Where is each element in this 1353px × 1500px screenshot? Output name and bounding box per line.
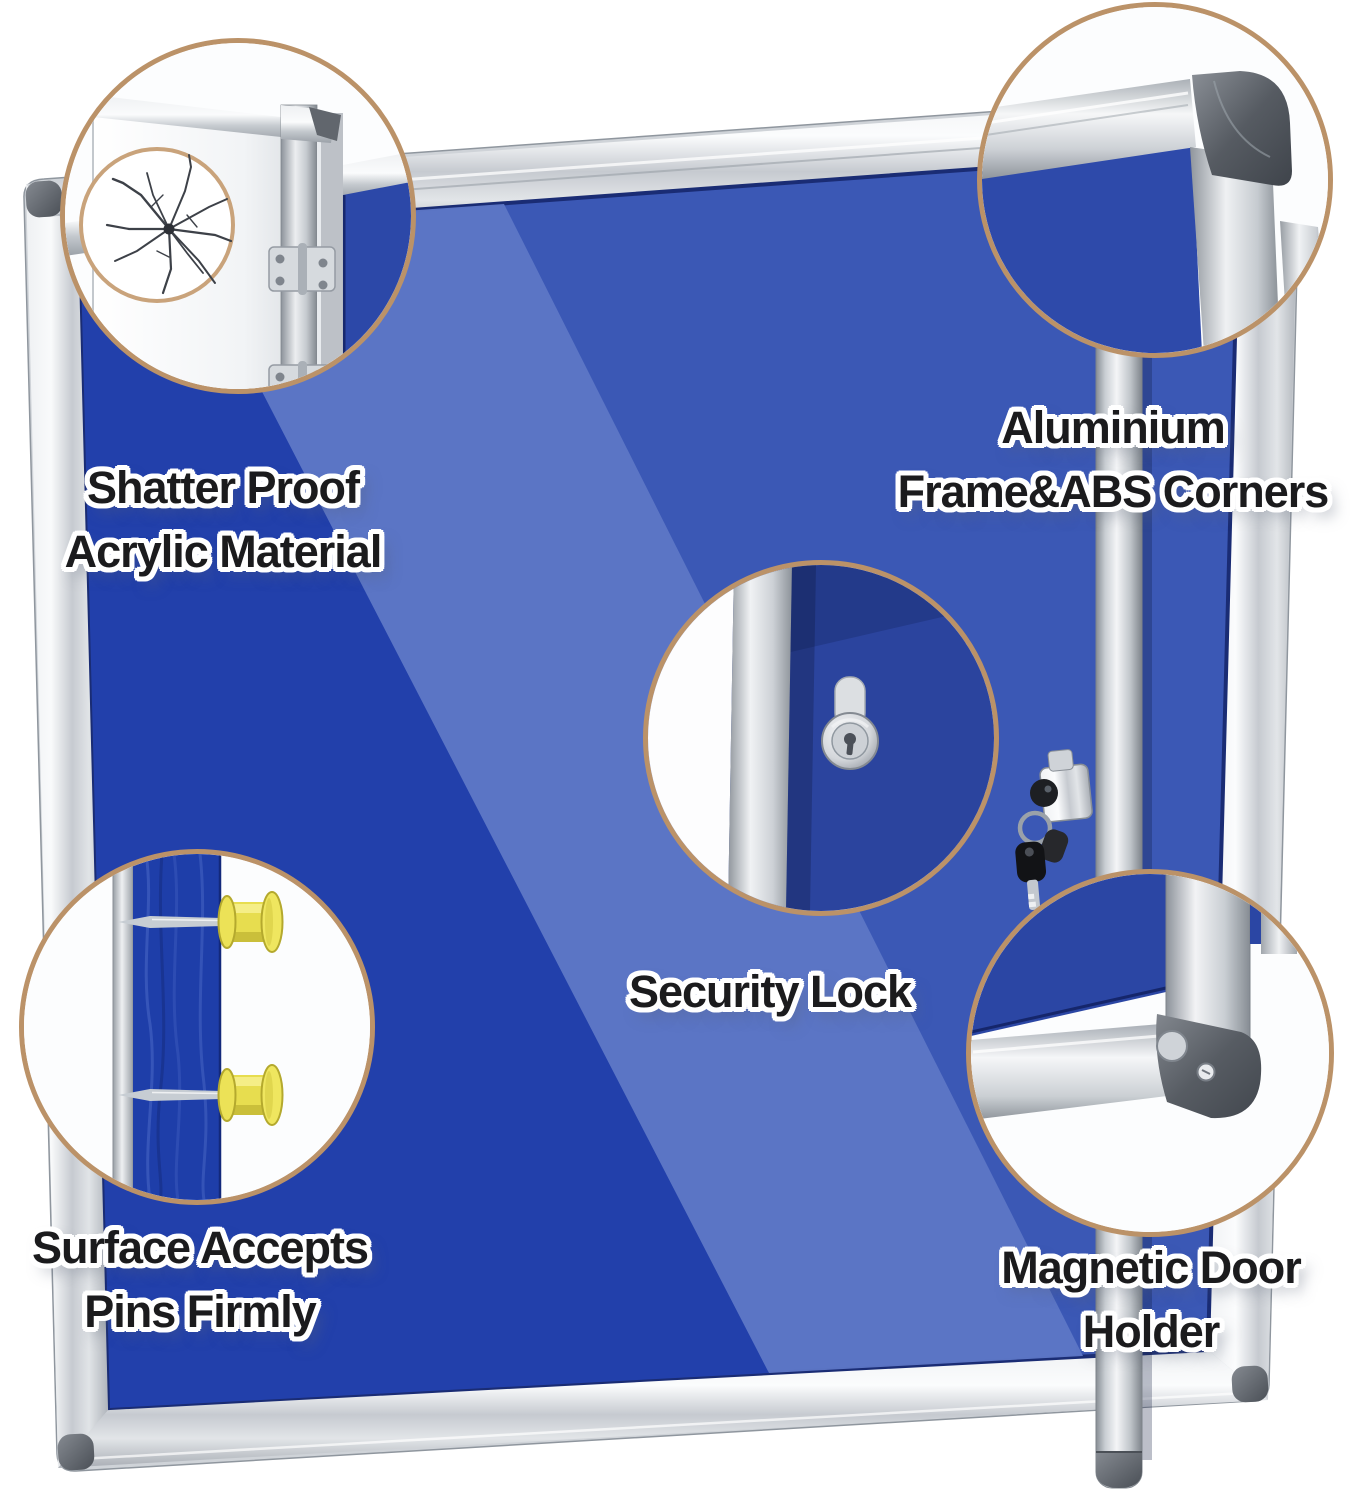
magnetic-corner-icon — [971, 874, 1329, 1232]
label-aluminium-corner: Aluminium Frame&ABS Corners — [874, 396, 1352, 524]
product-feature-infographic: Shatter Proof Acrylic Material Aluminium… — [0, 0, 1353, 1500]
pin-inner-flange — [219, 1069, 236, 1121]
door-corner-cap — [1096, 1452, 1142, 1488]
callout-aluminium-corner — [977, 2, 1333, 358]
callout-security-lock — [643, 560, 999, 916]
callout-shatter-proof — [60, 38, 416, 394]
door-frame-bar — [1166, 874, 1250, 1044]
corner-cap-bottom-right — [1231, 1365, 1269, 1403]
push-pins-icon — [24, 854, 370, 1200]
lock-cylinder-icon — [648, 565, 994, 911]
label-security-lock: Security Lock — [575, 960, 965, 1024]
label-magnetic-holder: Magnetic Door Holder — [952, 1236, 1350, 1364]
callout-magnetic-holder — [966, 869, 1334, 1237]
lock-barrel-highlight — [1045, 786, 1052, 793]
label-surface-pins: Surface Accepts Pins Firmly — [0, 1216, 400, 1344]
corner-cap-bottom-left — [57, 1433, 95, 1471]
crack-impact-point — [164, 224, 175, 235]
aluminium-corner-icon — [982, 7, 1328, 353]
lock-barrel — [1030, 779, 1058, 807]
board-edge-strip — [113, 854, 133, 1200]
label-shatter-proof: Shatter Proof Acrylic Material — [0, 456, 446, 584]
hinge-icon — [269, 243, 335, 295]
corner-cap-top-left — [25, 180, 63, 218]
magnet-icon — [1157, 1031, 1187, 1061]
crack-detail-circle — [81, 149, 233, 301]
felt-cross-section — [133, 854, 220, 1200]
cracked-acrylic-door-icon — [65, 43, 411, 389]
door-edge-strip — [728, 565, 792, 911]
callout-surface-pins — [19, 849, 375, 1205]
pin-inner-flange — [219, 896, 236, 948]
